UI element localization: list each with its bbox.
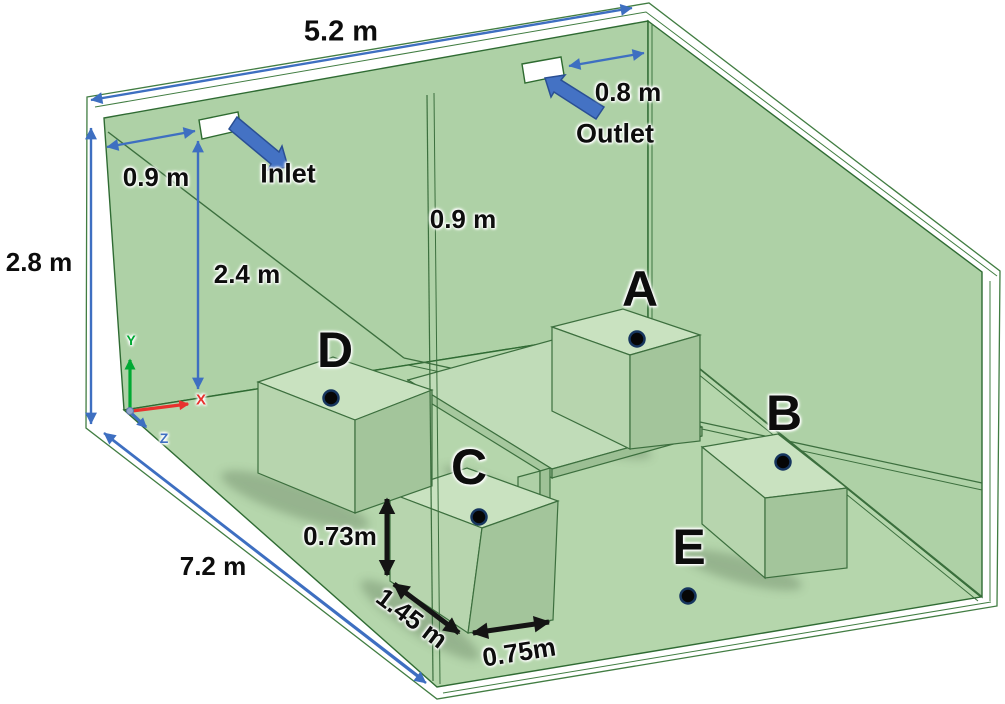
room-depth-label: 7.2 m <box>180 553 247 579</box>
point-c-dot <box>472 510 487 525</box>
inlet-offset-label: 0.9 m <box>123 164 190 190</box>
point-e-label: E <box>672 522 705 572</box>
figure-canvas: 5.2 m 2.8 m 7.2 m 0.9 m 2.4 m 0.9 m 0.8 … <box>0 0 1005 704</box>
inlet-label: Inlet <box>260 161 316 188</box>
back-wall-offset-label: 0.9 m <box>430 206 497 232</box>
room-width-label: 5.2 m <box>304 18 378 47</box>
obstacle-height-label: 0.73m <box>303 523 377 549</box>
point-d-dot <box>324 391 339 406</box>
outlet-label: Outlet <box>576 121 654 148</box>
point-c-label: C <box>451 442 487 492</box>
x-axis-label: X <box>196 393 206 408</box>
inlet-height-label: 2.4 m <box>214 261 281 287</box>
room-3d-scene <box>0 0 1005 704</box>
point-a-label: A <box>622 264 658 314</box>
point-b-dot <box>776 455 791 470</box>
z-axis-label: Z <box>160 431 169 445</box>
axes-origin <box>127 408 134 415</box>
point-e-dot <box>681 589 696 604</box>
point-a-dot <box>630 332 645 347</box>
outlet-offset-label: 0.8 m <box>595 79 662 105</box>
room-height-label: 2.8 m <box>6 249 73 275</box>
point-b-label: B <box>766 388 802 438</box>
y-axis-label: Y <box>126 333 135 347</box>
point-d-label: D <box>317 325 353 375</box>
